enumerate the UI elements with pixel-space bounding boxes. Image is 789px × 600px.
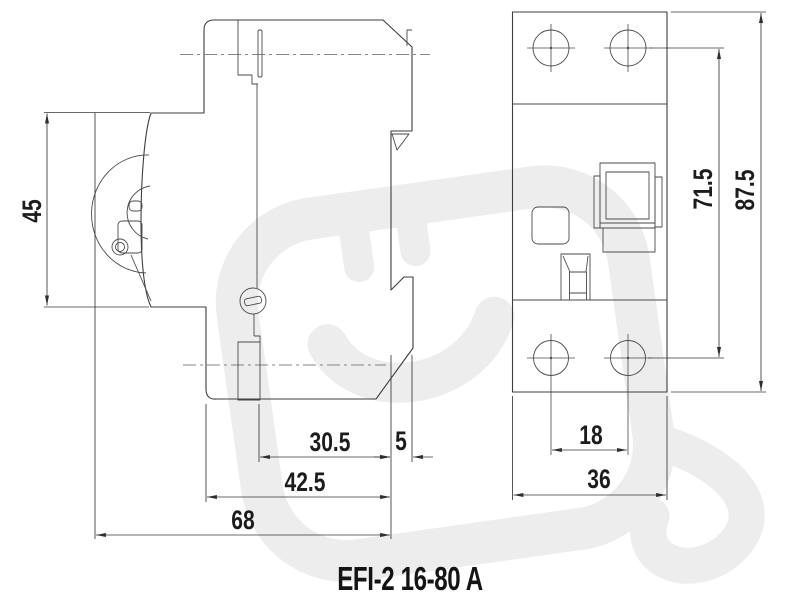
dimension-5-label: 5	[395, 427, 407, 457]
toggle-lever-inner	[570, 272, 587, 300]
dimension-45-label: 45	[18, 199, 48, 222]
hump-slot	[129, 201, 142, 211]
dimension-36-label: 36	[587, 465, 610, 495]
watermark-pin-right	[410, 212, 416, 252]
center-dot	[627, 357, 629, 359]
dimension-30-5-label: 30.5	[310, 428, 351, 458]
bracket-diagonal	[131, 255, 151, 301]
drawing-canvas: 45 30.5 5 42.5 68	[0, 0, 789, 600]
watermark-pin-left	[354, 228, 360, 268]
din-hook-tooth	[392, 134, 409, 150]
dimension-18: 18	[552, 421, 627, 451]
dimension-18-label: 18	[579, 421, 602, 451]
center-dot	[627, 47, 629, 49]
watermark-smile	[327, 317, 502, 393]
watermark-cord	[636, 430, 753, 571]
dimension-68-label: 68	[231, 506, 254, 536]
dimension-71-5: 71.5	[648, 48, 724, 358]
dimension-42-5-label: 42.5	[285, 468, 326, 498]
center-dot	[550, 47, 552, 49]
test-button	[532, 207, 569, 244]
product-title: EFI-2 16-80 A	[337, 561, 483, 598]
toggle-lever-bevel-left	[563, 256, 570, 272]
technical-dimension-drawing: 45 30.5 5 42.5 68	[0, 0, 789, 600]
top-terminal-slot	[238, 20, 258, 84]
switch-tab-right	[655, 177, 662, 227]
dimension-30-5: 30.5	[259, 404, 390, 462]
front-screw-inner	[116, 243, 125, 252]
dimension-87-5-label: 87.5	[731, 170, 761, 211]
center-dot	[550, 357, 552, 359]
dimension-71-5-label: 71.5	[689, 169, 719, 210]
top-terminal-plate	[258, 30, 262, 77]
hump-inner-arc	[127, 186, 150, 239]
toggle-lever-bevel-right	[586, 256, 588, 272]
